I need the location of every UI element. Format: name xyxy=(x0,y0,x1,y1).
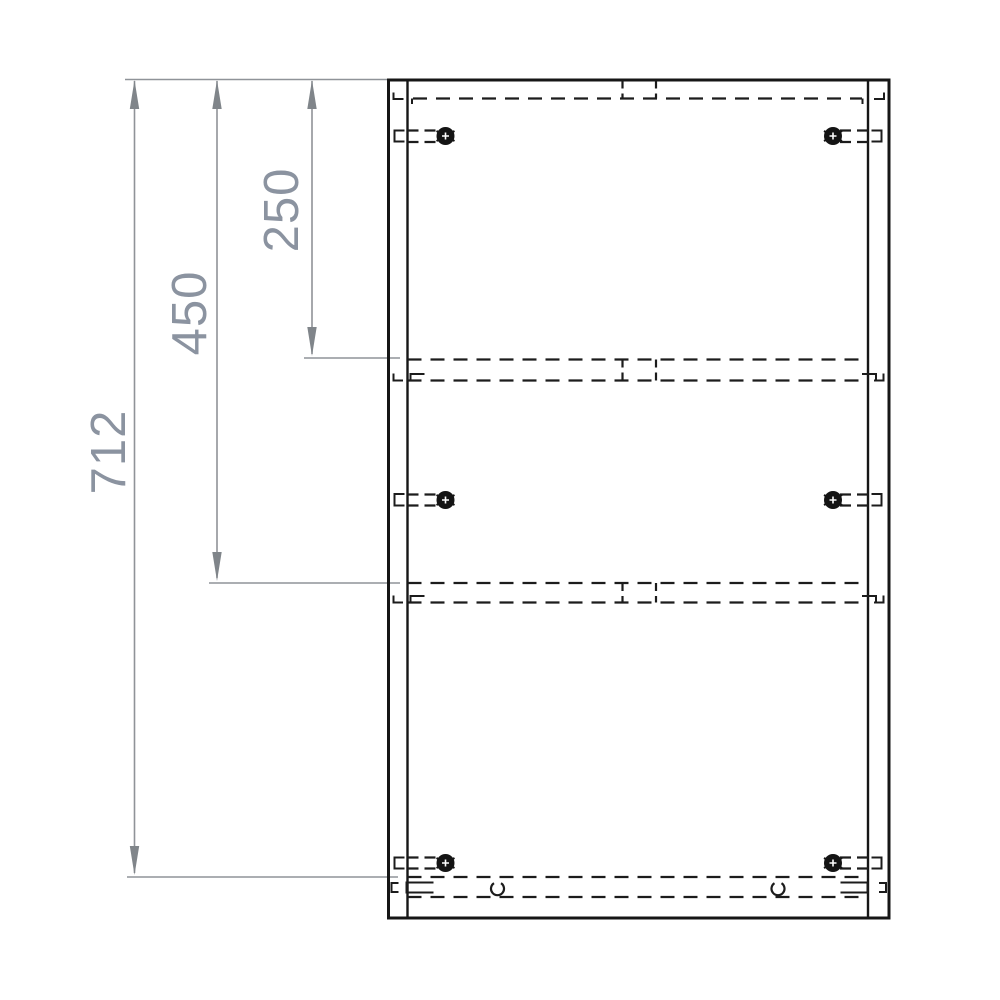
arrow-250-up xyxy=(307,80,316,109)
arrow-450-down xyxy=(212,552,221,581)
panel-outline xyxy=(389,80,890,918)
arrow-712-down xyxy=(130,846,139,875)
dowel-mark-right xyxy=(772,883,785,895)
joint-mark-bottom-left xyxy=(392,883,434,893)
arrow-250-down xyxy=(307,327,316,356)
cam-fittings xyxy=(395,127,882,872)
joint-mark-top-left xyxy=(394,93,413,105)
joint-mark-bottom-right xyxy=(841,883,887,893)
joint-mark-shelf1-right xyxy=(862,374,884,381)
dimension-label-450: 450 xyxy=(163,271,217,356)
cam-fitting-middle-right xyxy=(824,491,882,509)
hidden-lines xyxy=(408,81,869,898)
dimension-labels: 712 450 250 xyxy=(82,168,309,495)
joint-mark-top-right xyxy=(863,93,885,105)
cam-fitting-bottom-right xyxy=(824,854,882,872)
dowel-mark-left xyxy=(491,883,504,895)
arrow-450-up xyxy=(212,80,221,109)
cam-fitting-bottom-left xyxy=(395,854,455,872)
dimension-label-250: 250 xyxy=(255,168,309,253)
cam-fitting-top-left xyxy=(395,127,455,145)
panel-outer-edge xyxy=(389,80,890,918)
cam-fitting-middle-left xyxy=(395,491,455,509)
joint-marks xyxy=(392,93,887,893)
joint-mark-shelf2-right xyxy=(862,596,884,603)
cam-fitting-top-right xyxy=(824,127,882,145)
dowel-marks xyxy=(491,883,784,895)
arrow-712-up xyxy=(130,80,139,109)
cabinet-panel-drawing: 712 450 250 xyxy=(0,0,1000,1000)
technical-drawing-page: 712 450 250 xyxy=(0,0,1000,1000)
dimension-label-712: 712 xyxy=(82,410,136,495)
